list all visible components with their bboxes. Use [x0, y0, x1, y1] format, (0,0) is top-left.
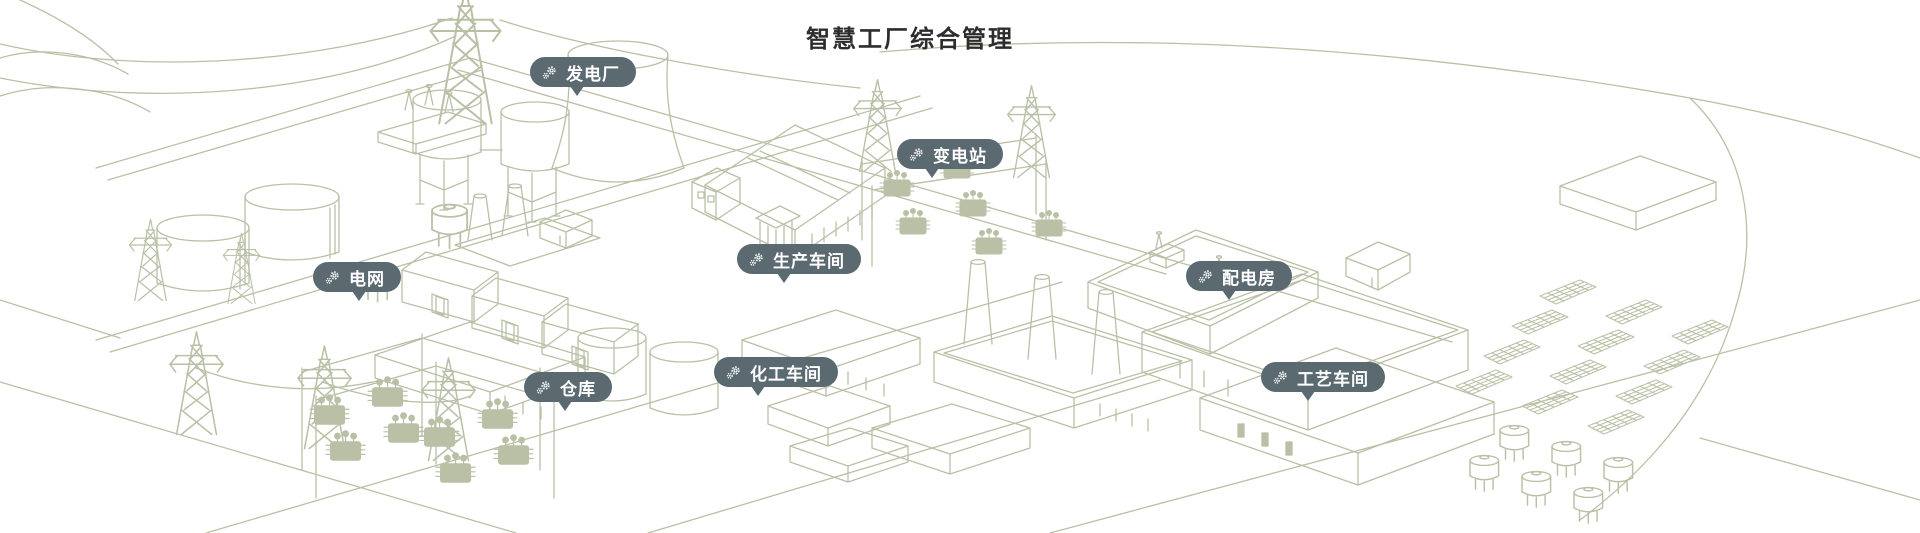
roads-and-terrain [0, 0, 1920, 533]
hotspot-power-plant[interactable]: 发电厂 [530, 57, 636, 87]
boiler-house [455, 184, 600, 266]
hotspot-label: 仓库 [560, 375, 596, 400]
gears-icon [535, 379, 552, 396]
hotspot-label: 工艺车间 [1297, 365, 1369, 390]
hotspot-label: 配电房 [1222, 264, 1276, 289]
gears-icon [1272, 369, 1289, 386]
hotspot-label: 变电站 [933, 142, 987, 167]
hotspot-label: 生产车间 [773, 247, 845, 272]
gears-icon [541, 64, 558, 81]
gabled-warehouses [402, 252, 638, 374]
hotspot-distribution-room[interactable]: 配电房 [1186, 261, 1292, 291]
transmission-towers [130, 0, 501, 461]
smart-factory-dashboard: 智慧工厂综合管理 发电厂 变电站 电网 生产车间 配电房 仓库 [0, 0, 1920, 533]
hotspot-label: 化工车间 [750, 360, 822, 385]
hotspot-chemical-workshop[interactable]: 化工车间 [714, 357, 838, 387]
production-hall [692, 125, 885, 258]
gears-icon [908, 146, 925, 163]
hotspot-warehouse[interactable]: 仓库 [524, 372, 612, 402]
gears-icon [748, 251, 765, 268]
gears-icon [324, 269, 341, 286]
hotspot-power-grid[interactable]: 电网 [313, 262, 401, 292]
hotspot-production-workshop[interactable]: 生产车间 [737, 244, 861, 274]
factory-illustration [0, 0, 1920, 533]
distribution-building [1088, 230, 1410, 354]
hotspot-process-workshop[interactable]: 工艺车间 [1261, 362, 1385, 392]
hotspot-label: 发电厂 [566, 60, 620, 85]
hotspot-substation[interactable]: 变电站 [897, 139, 1003, 169]
grid-substation [302, 334, 554, 498]
hotspot-label: 电网 [349, 265, 385, 290]
gears-icon [1197, 268, 1214, 285]
gears-icon [725, 364, 742, 381]
hopper-tanks [1470, 426, 1633, 524]
page-title: 智慧工厂综合管理 [806, 19, 1014, 54]
